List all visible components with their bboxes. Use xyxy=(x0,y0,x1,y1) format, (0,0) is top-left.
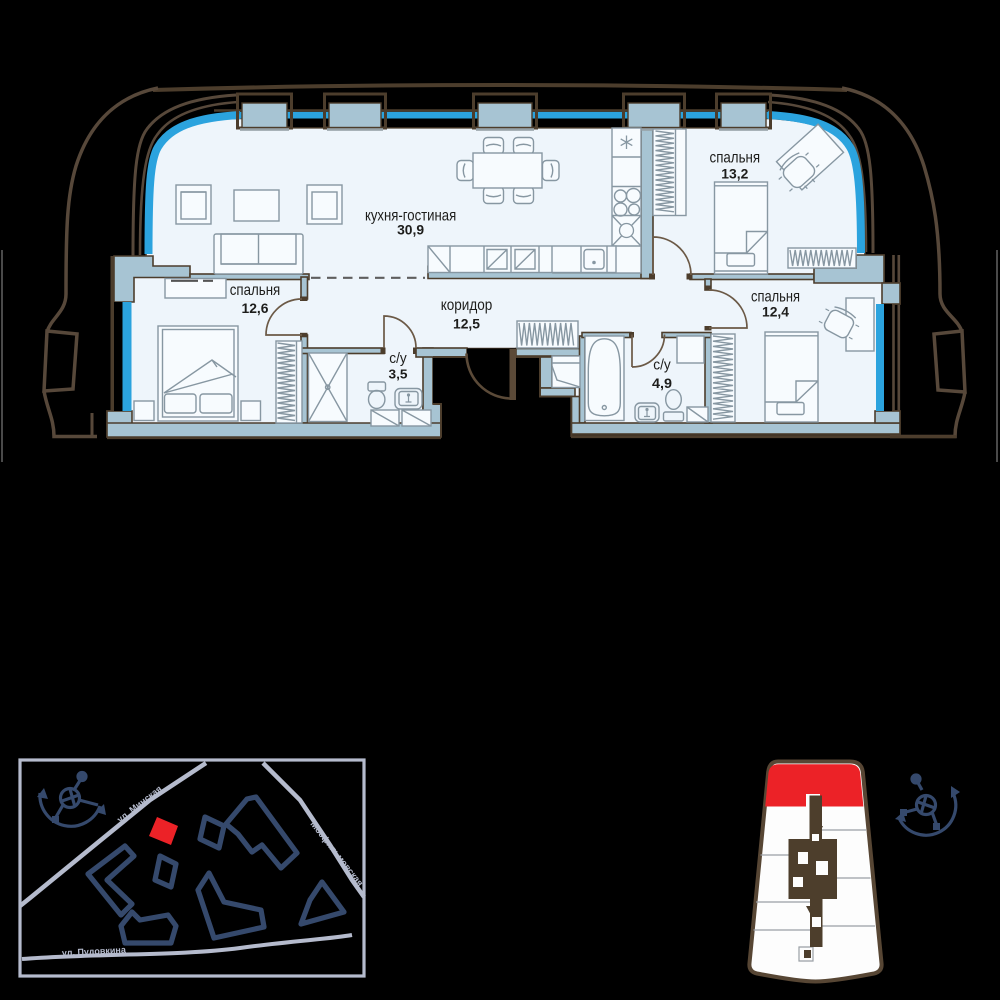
svg-text:4,9: 4,9 xyxy=(652,376,672,391)
svg-text:с/у: с/у xyxy=(389,350,407,367)
svg-text:12,5: 12,5 xyxy=(453,315,480,331)
svg-text:с/у: с/у xyxy=(653,357,671,374)
svg-text:30,9: 30,9 xyxy=(397,222,424,238)
svg-text:спальня: спальня xyxy=(230,282,281,299)
svg-text:спальня: спальня xyxy=(710,150,761,167)
svg-text:12,6: 12,6 xyxy=(242,300,269,316)
svg-text:12,4: 12,4 xyxy=(762,303,789,319)
svg-text:коридор: коридор xyxy=(441,297,493,314)
svg-text:3,5: 3,5 xyxy=(389,367,408,382)
svg-text:13,2: 13,2 xyxy=(721,166,748,182)
